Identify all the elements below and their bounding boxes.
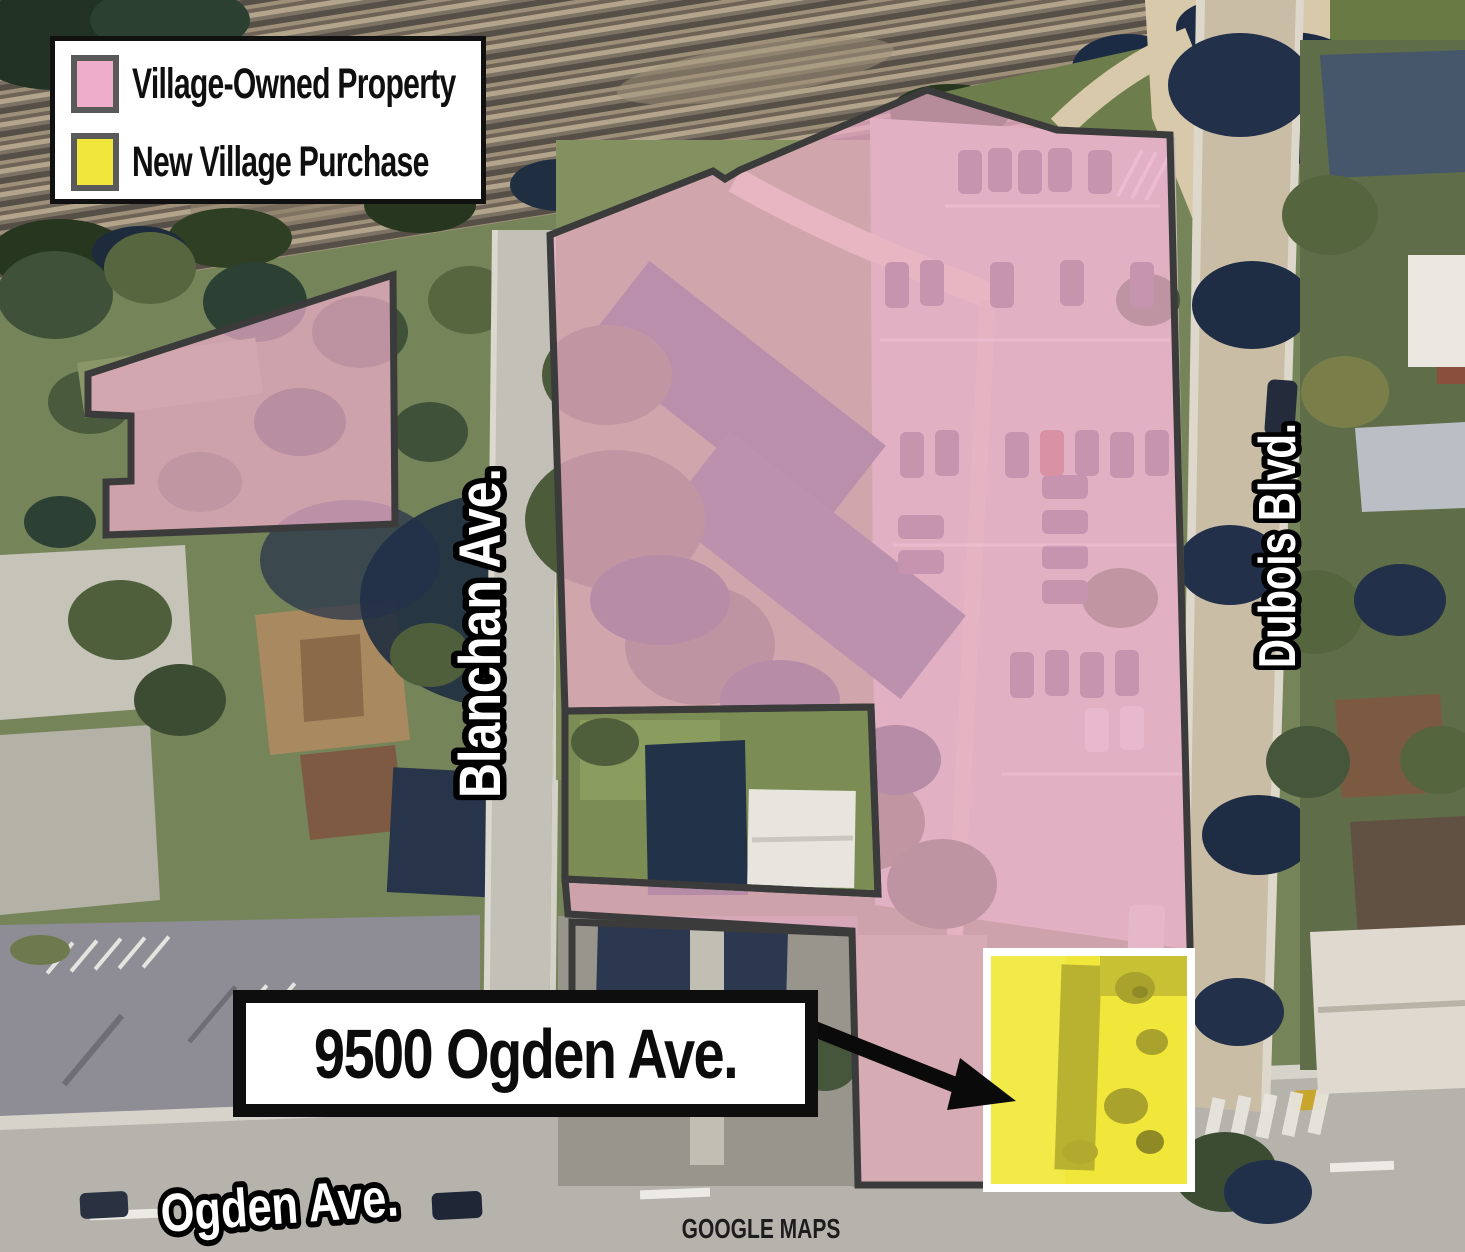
legend: Village-Owned Property New Village Purch… [50, 36, 486, 204]
new-purchase-swatch [71, 133, 119, 191]
legend-item-label: New Village Purchase [132, 133, 429, 191]
excluded-parcel-north [565, 707, 878, 895]
legend-item-new-purchase: New Village Purchase [71, 133, 556, 191]
annotated-aerial-map: Blanchan Ave. Dubois Blvd. Ogden Ave. Vi… [0, 0, 1465, 1252]
legend-item-label: Village-Owned Property [132, 55, 456, 113]
village-owned-swatch [71, 55, 119, 113]
address-callout: 9500 Ogden Ave. [233, 990, 818, 1117]
legend-item-village-owned: Village-Owned Property [71, 55, 594, 113]
map-attribution: GOOGLE MAPS [649, 1213, 874, 1245]
address-callout-text: 9500 Ogden Ave. [314, 1014, 737, 1094]
new-purchase-box [983, 948, 1195, 1192]
street-label-blanchan: Blanchan Ave. [448, 468, 513, 798]
street-label-dubois: Dubois Blvd. [1249, 423, 1307, 668]
